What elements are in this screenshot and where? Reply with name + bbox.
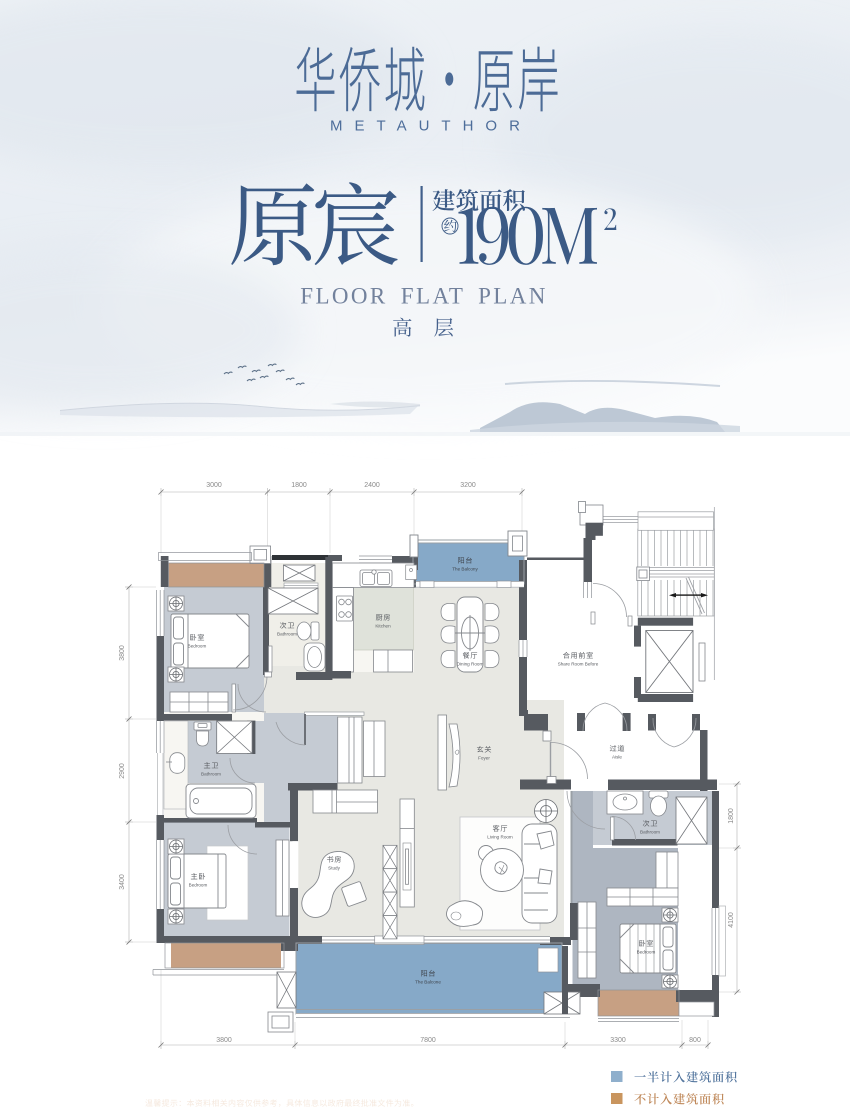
svg-text:Aisle: Aisle	[612, 755, 622, 760]
svg-text:The Balcone: The Balcone	[415, 980, 441, 985]
svg-text:3200: 3200	[460, 482, 476, 489]
svg-text:FLOOR FLAT PLAN: FLOOR FLAT PLAN	[300, 284, 548, 309]
svg-text:Study: Study	[328, 866, 340, 871]
svg-text:Bedroom: Bedroom	[189, 883, 208, 888]
svg-text:800: 800	[689, 1037, 701, 1044]
svg-text:Bathroom: Bathroom	[201, 772, 221, 777]
svg-text:4100: 4100	[728, 912, 735, 928]
svg-text:Bedroom: Bedroom	[188, 644, 207, 649]
svg-text:Bedroom: Bedroom	[637, 950, 656, 955]
svg-text:Bathroom: Bathroom	[640, 830, 660, 835]
svg-text:3400: 3400	[119, 874, 126, 890]
svg-text:3800: 3800	[216, 1037, 232, 1044]
svg-text:3000: 3000	[206, 482, 222, 489]
svg-text:Living Room: Living Room	[487, 835, 513, 840]
svg-text:3300: 3300	[610, 1037, 626, 1044]
svg-text:Foyer: Foyer	[478, 756, 490, 761]
svg-text:The Balcony: The Balcony	[452, 567, 478, 572]
svg-text:1800: 1800	[291, 482, 307, 489]
svg-text:METAUTHOR: METAUTHOR	[330, 118, 532, 135]
svg-text:Dining Room: Dining Room	[457, 662, 484, 667]
svg-text:1800: 1800	[728, 808, 735, 824]
svg-text:Share Room Before: Share Room Before	[558, 662, 599, 667]
svg-text:7800: 7800	[420, 1037, 436, 1044]
svg-text:Bathroom: Bathroom	[277, 632, 297, 637]
svg-text:Kitchen: Kitchen	[375, 624, 391, 629]
svg-text:2400: 2400	[364, 482, 380, 489]
svg-text:3800: 3800	[119, 645, 126, 661]
svg-text:2900: 2900	[119, 763, 126, 779]
